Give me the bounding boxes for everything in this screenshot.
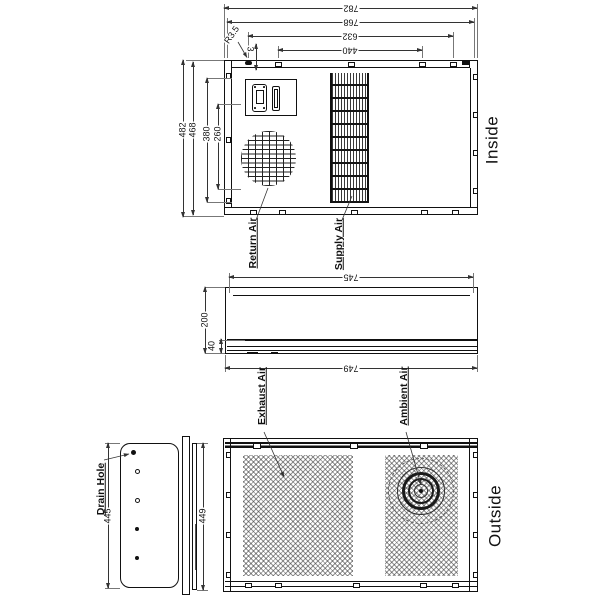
outside-bottom-strip [225, 581, 477, 587]
dim-440: 440 [341, 46, 358, 55]
fan-center [419, 489, 423, 493]
outside-label: Outside [487, 484, 504, 548]
dim-632: 632 [341, 32, 358, 41]
mounting-slot [452, 210, 459, 215]
mounting-slot [275, 583, 282, 588]
side-view-top-line [233, 295, 470, 296]
outside-left-flange [223, 438, 231, 592]
panel-hole [135, 556, 139, 560]
flange-hole [226, 492, 231, 498]
mounting-slot [450, 62, 457, 67]
drain-hole [131, 450, 136, 455]
mounting-slot [421, 210, 428, 215]
flange-hole [473, 492, 478, 498]
mounting-slot [351, 210, 358, 215]
flange-hole [226, 137, 231, 143]
flange-hole [473, 452, 478, 458]
extension-line [218, 104, 241, 105]
supply-air-grille [330, 73, 369, 203]
flange-hole [226, 532, 231, 538]
side-view-base-line3 [227, 350, 477, 351]
panel-hole [135, 498, 140, 503]
dim-3-line [256, 44, 257, 70]
connector-pin [254, 86, 256, 88]
flange-hole [473, 188, 478, 194]
dim-40: 40 [208, 340, 217, 352]
mounting-slot [279, 210, 286, 215]
supply-air-label: Supply Air [334, 217, 345, 271]
panel-hole [135, 469, 140, 474]
mounting-slot [348, 62, 355, 67]
mounting-slot [353, 583, 360, 588]
exhaust-air-label: Exhaust Air [257, 366, 268, 426]
dim-768: 768 [342, 18, 359, 27]
signal-connector-inner [274, 89, 278, 108]
drain-fitting-mark [247, 352, 258, 354]
flange-end-cap [462, 61, 470, 66]
extension-line [474, 18, 475, 58]
side-panel [120, 443, 179, 588]
flange-hole [226, 198, 231, 204]
mounting-slot [420, 443, 428, 449]
mounting-slot [250, 210, 257, 215]
exhaust-air-mesh [243, 455, 353, 576]
dim-r3-5: R3.5 [222, 24, 241, 46]
mounting-slot [419, 62, 426, 67]
dim-468: 468 [189, 121, 198, 138]
dim-745: 745 [342, 273, 359, 282]
extension-line [207, 78, 232, 79]
extension-line [183, 216, 224, 217]
dim-449: 449 [199, 507, 208, 524]
mounting-slot [253, 443, 261, 449]
drain-hole-label: Drain Hole [96, 462, 107, 517]
flange-hole [226, 572, 231, 578]
flange-hole [473, 112, 478, 118]
connector-pin [254, 107, 256, 109]
mounting-slot [350, 443, 358, 449]
right-flange-line [470, 68, 471, 207]
connector-pin [263, 86, 265, 88]
inside-label: Inside [484, 115, 501, 165]
dim-40-line [221, 339, 222, 353]
return-air-label: Return Air [248, 217, 259, 270]
extension-line [224, 4, 225, 58]
mounting-slot [245, 583, 252, 588]
return-air-fan [241, 131, 296, 186]
drawing-canvas: 782 768 632 440 R3.5 3 482 468 380 260 R… [0, 0, 600, 600]
panel-edge-slot [195, 524, 196, 570]
extension-line [205, 287, 225, 288]
dim-3: 3 [246, 45, 255, 52]
dim-380: 380 [203, 125, 212, 142]
extension-line [477, 4, 478, 58]
mounting-flange-bar [182, 436, 190, 595]
flange-hole [226, 452, 231, 458]
side-view-base-line [227, 339, 477, 341]
ambient-air-label: Ambient Air [399, 365, 410, 426]
flange-hole [473, 150, 478, 156]
flange-hole [473, 74, 478, 80]
side-view-base-line2 [227, 346, 477, 347]
connector-pin [263, 107, 265, 109]
panel-hole [135, 527, 139, 531]
dim-260-line [218, 104, 219, 189]
drain-fitting-mark [271, 352, 278, 354]
dim-482: 482 [179, 121, 188, 138]
dim-749: 749 [342, 364, 359, 373]
power-connector-inner [256, 90, 264, 104]
flange-hole [473, 572, 478, 578]
extension-line [218, 189, 241, 190]
mounting-slot [245, 61, 252, 65]
flange-hole [473, 532, 478, 538]
mounting-slot [275, 62, 282, 67]
outside-right-flange [469, 438, 478, 592]
mounting-slot [452, 583, 459, 588]
left-flange-line [231, 68, 232, 207]
dim-782: 782 [342, 4, 359, 13]
side-view-body [225, 287, 478, 354]
dim-260: 260 [214, 125, 223, 142]
extension-line [207, 202, 232, 203]
mounting-slot [420, 583, 427, 588]
dim-200: 200 [201, 311, 210, 328]
